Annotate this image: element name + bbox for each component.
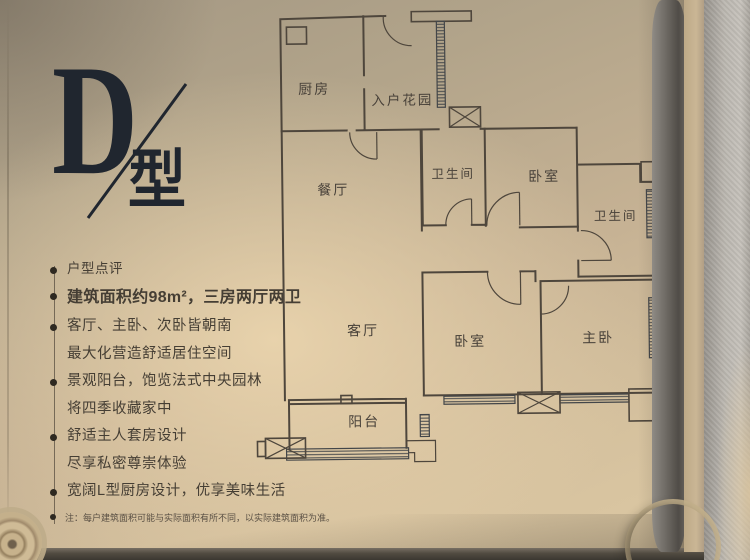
- review-item-text: 舒适主人套房设计: [67, 428, 187, 444]
- review-item-text: 户型点评: [67, 261, 123, 276]
- bullet-icon: [50, 379, 57, 386]
- type-d-logo: D 型: [48, 52, 208, 227]
- bullet-icon: [50, 293, 57, 300]
- frame-ledge: [0, 548, 706, 560]
- room-label-bedroom-top: 卧室: [528, 168, 560, 185]
- bullet-icon: [50, 489, 57, 496]
- floorplan-photo: D 型 户型点评 建筑面积约98m²，三房两厅两卫 客厅、主卧、次卧皆朝南 最大…: [0, 0, 750, 560]
- display-board: D 型 户型点评 建筑面积约98m²，三房两厅两卫 客厅、主卧、次卧皆朝南 最大…: [0, 0, 684, 548]
- review-item-text: 宽阔L型厨房设计，优享美味生活: [67, 483, 286, 499]
- review-list: 户型点评 建筑面积约98m²，三房两厅两卫 客厅、主卧、次卧皆朝南 最大化营造舒…: [50, 256, 265, 524]
- bullet-icon: [50, 324, 57, 331]
- logo-letter: D: [52, 52, 138, 208]
- room-label-master: 主卧: [582, 330, 614, 346]
- walls-balcony: [257, 394, 436, 463]
- room-label-entry-garden: 入户花园: [371, 91, 433, 108]
- room-label-living: 客厅: [347, 322, 379, 339]
- board-crease: [7, 0, 9, 548]
- room-label-kitchen: 厨房: [298, 82, 330, 98]
- review-item-text: 景观阳台，饱览法式中央园林: [67, 373, 262, 389]
- room-label-bath-1: 卫生间: [431, 167, 475, 182]
- review-item-text: 最大化营造舒适居住空间: [67, 346, 232, 362]
- room-labels: 厨房 入户花园 餐厅 卫生间 卧室 卫生间 客厅 卧室 主卧 阳台: [298, 78, 640, 431]
- board-shadow-bottom: [0, 514, 684, 548]
- review-item: 景观阳台，饱览法式中央园林: [50, 368, 265, 396]
- review-item: 客厅、主卧、次卧皆朝南: [50, 313, 265, 341]
- review-item: 舒适主人套房设计: [50, 423, 265, 451]
- review-item-text: 客厅、主卧、次卧皆朝南: [67, 318, 232, 334]
- review-item: 户型点评: [50, 256, 265, 282]
- frame-edge-bar: [652, 0, 686, 552]
- room-label-balcony: 阳台: [348, 414, 380, 430]
- review-item: 建筑面积约98m²，三房两厅两卫: [50, 282, 265, 313]
- review-item-text: 尽享私密尊崇体验: [67, 456, 187, 472]
- pillar-highlight: [684, 0, 706, 552]
- stucco-wall: [704, 0, 750, 560]
- room-label-dining: 餐厅: [317, 182, 349, 198]
- bullet-icon: [50, 267, 57, 274]
- logo-suffix: 型: [128, 145, 186, 216]
- review-item: 将四季收藏家中: [50, 396, 265, 424]
- review-item: 尽享私密尊崇体验: [50, 451, 265, 479]
- room-label-bath-2: 卫生间: [594, 209, 638, 224]
- room-label-bedroom-bottom: 卧室: [454, 333, 486, 350]
- review-item: 宽阔L型厨房设计，优享美味生活: [50, 478, 265, 506]
- review-item-text: 将四季收藏家中: [67, 401, 172, 417]
- floor-plan: 厨房 入户花园 餐厅 卫生间 卧室 卫生间 客厅 卧室 主卧 阳台: [247, 0, 683, 483]
- bullet-icon: [50, 434, 57, 441]
- review-item: 最大化营造舒适居住空间: [50, 341, 265, 369]
